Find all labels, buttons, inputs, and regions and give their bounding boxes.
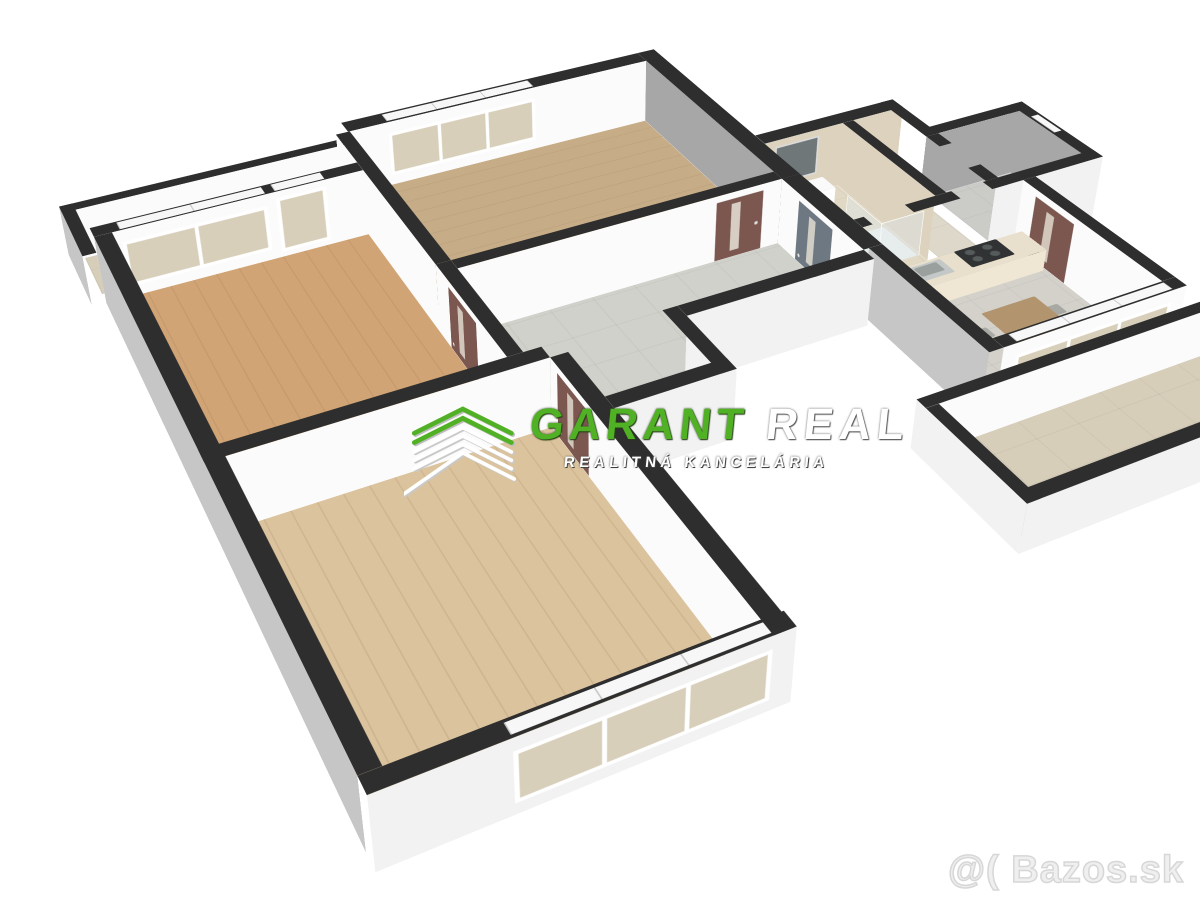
window-pane [441,113,487,159]
window-pane [280,190,327,247]
door-handle-icon [797,253,799,258]
agency-logo: GARANT REAL REALITNÁ KANCELÁRIA [404,400,910,500]
logo-text-real: REAL [764,400,913,450]
door-glass [806,217,816,268]
burner-icon [988,250,1002,257]
window-pane [198,210,268,264]
roof-stripes-icon [404,400,516,500]
window-pane [607,687,687,762]
logo-text-garant: GARANT [527,400,750,450]
window-glazing [276,186,331,252]
burner-icon [971,255,985,262]
bazos-watermark: @( Bazos.sk [948,849,1184,892]
burner-icon [980,244,994,251]
door-handle-icon [754,221,757,225]
window-pane [127,228,200,283]
door-glass [729,201,740,250]
window-pane [518,721,601,798]
window-pane [392,125,439,172]
window-pane [690,655,768,729]
door-handle-icon [453,342,455,348]
floorplan-render: GARANT REAL REALITNÁ KANCELÁRIA @( Bazos… [0,0,1200,898]
door-glass [457,305,465,360]
burner-icon [963,249,977,256]
logo-tagline: REALITNÁ KANCELÁRIA [563,454,911,471]
window-pane [488,102,532,148]
